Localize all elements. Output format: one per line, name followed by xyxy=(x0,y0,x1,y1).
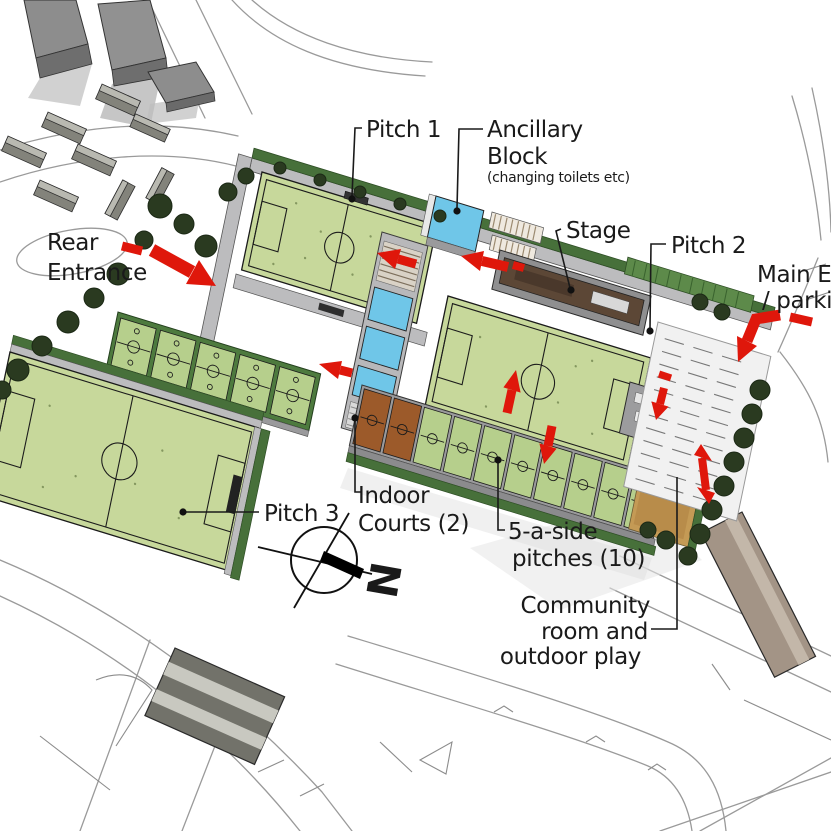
label-ancillary-line2: Block xyxy=(487,144,548,170)
label-community-line3: outdoor play xyxy=(500,644,641,670)
red-dash-main xyxy=(790,317,812,322)
label-rear-entrance-line2: Entrance xyxy=(47,260,147,286)
red-dash-spine xyxy=(513,265,524,268)
label-stage: Stage xyxy=(566,218,630,244)
label-main-entrance-line2: / parkin xyxy=(762,288,831,314)
label-community-line2: room and xyxy=(541,619,648,645)
compass-north-label: N xyxy=(356,558,410,601)
label-ancillary-note: (changing toilets etc) xyxy=(487,170,630,186)
red-arrow-left-courts xyxy=(319,361,352,379)
label-ancillary-line1: Ancillary xyxy=(487,117,583,143)
warehouse-building xyxy=(701,512,816,677)
red-dash-rear xyxy=(122,246,142,251)
red-dash-entrance xyxy=(659,374,671,378)
label-community-line1: Community xyxy=(520,593,650,619)
label-pitch1: Pitch 1 xyxy=(366,117,441,143)
label-five-a-side-line1: 5-a-side xyxy=(508,519,597,545)
label-indoor-line1: Indoor xyxy=(358,483,430,509)
label-indoor-line2: Courts (2) xyxy=(358,511,469,537)
label-pitch3: Pitch 3 xyxy=(264,501,339,527)
label-five-a-side-line2: pitches (10) xyxy=(512,546,645,572)
site-plan-illustration: N Rear Entrance Pitch 1 Ancillary Block … xyxy=(0,0,831,831)
label-pitch2: Pitch 2 xyxy=(671,233,746,259)
label-rear-entrance-line1: Rear xyxy=(47,230,99,256)
label-main-entrance-line1: Main En xyxy=(757,262,831,288)
site-plan-canvas: N Rear Entrance Pitch 1 Ancillary Block … xyxy=(0,0,831,831)
barn-building xyxy=(145,648,285,764)
